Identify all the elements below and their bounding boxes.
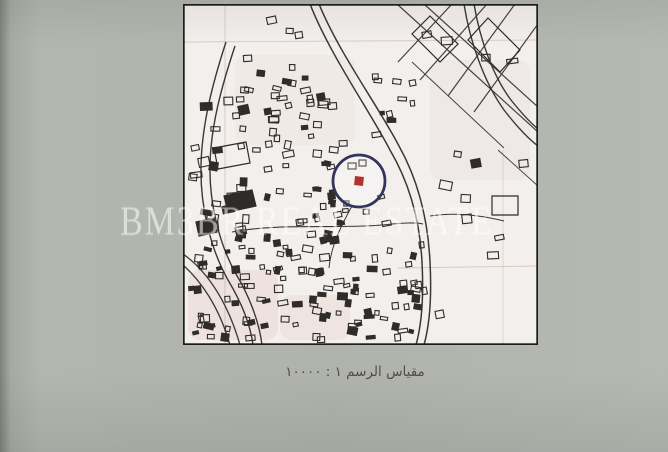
marker-red-dot (354, 176, 364, 186)
scale-caption: مقياس الرسم ١ : ١٠٠٠٠ (250, 364, 460, 380)
scanned-photo: BM3BR REAL ESTATE مقياس الرسم ١ : ١٠٠٠٠ (0, 0, 668, 452)
map-drawing (183, 4, 538, 345)
location-marker (333, 155, 385, 207)
cadastral-map (183, 4, 538, 345)
